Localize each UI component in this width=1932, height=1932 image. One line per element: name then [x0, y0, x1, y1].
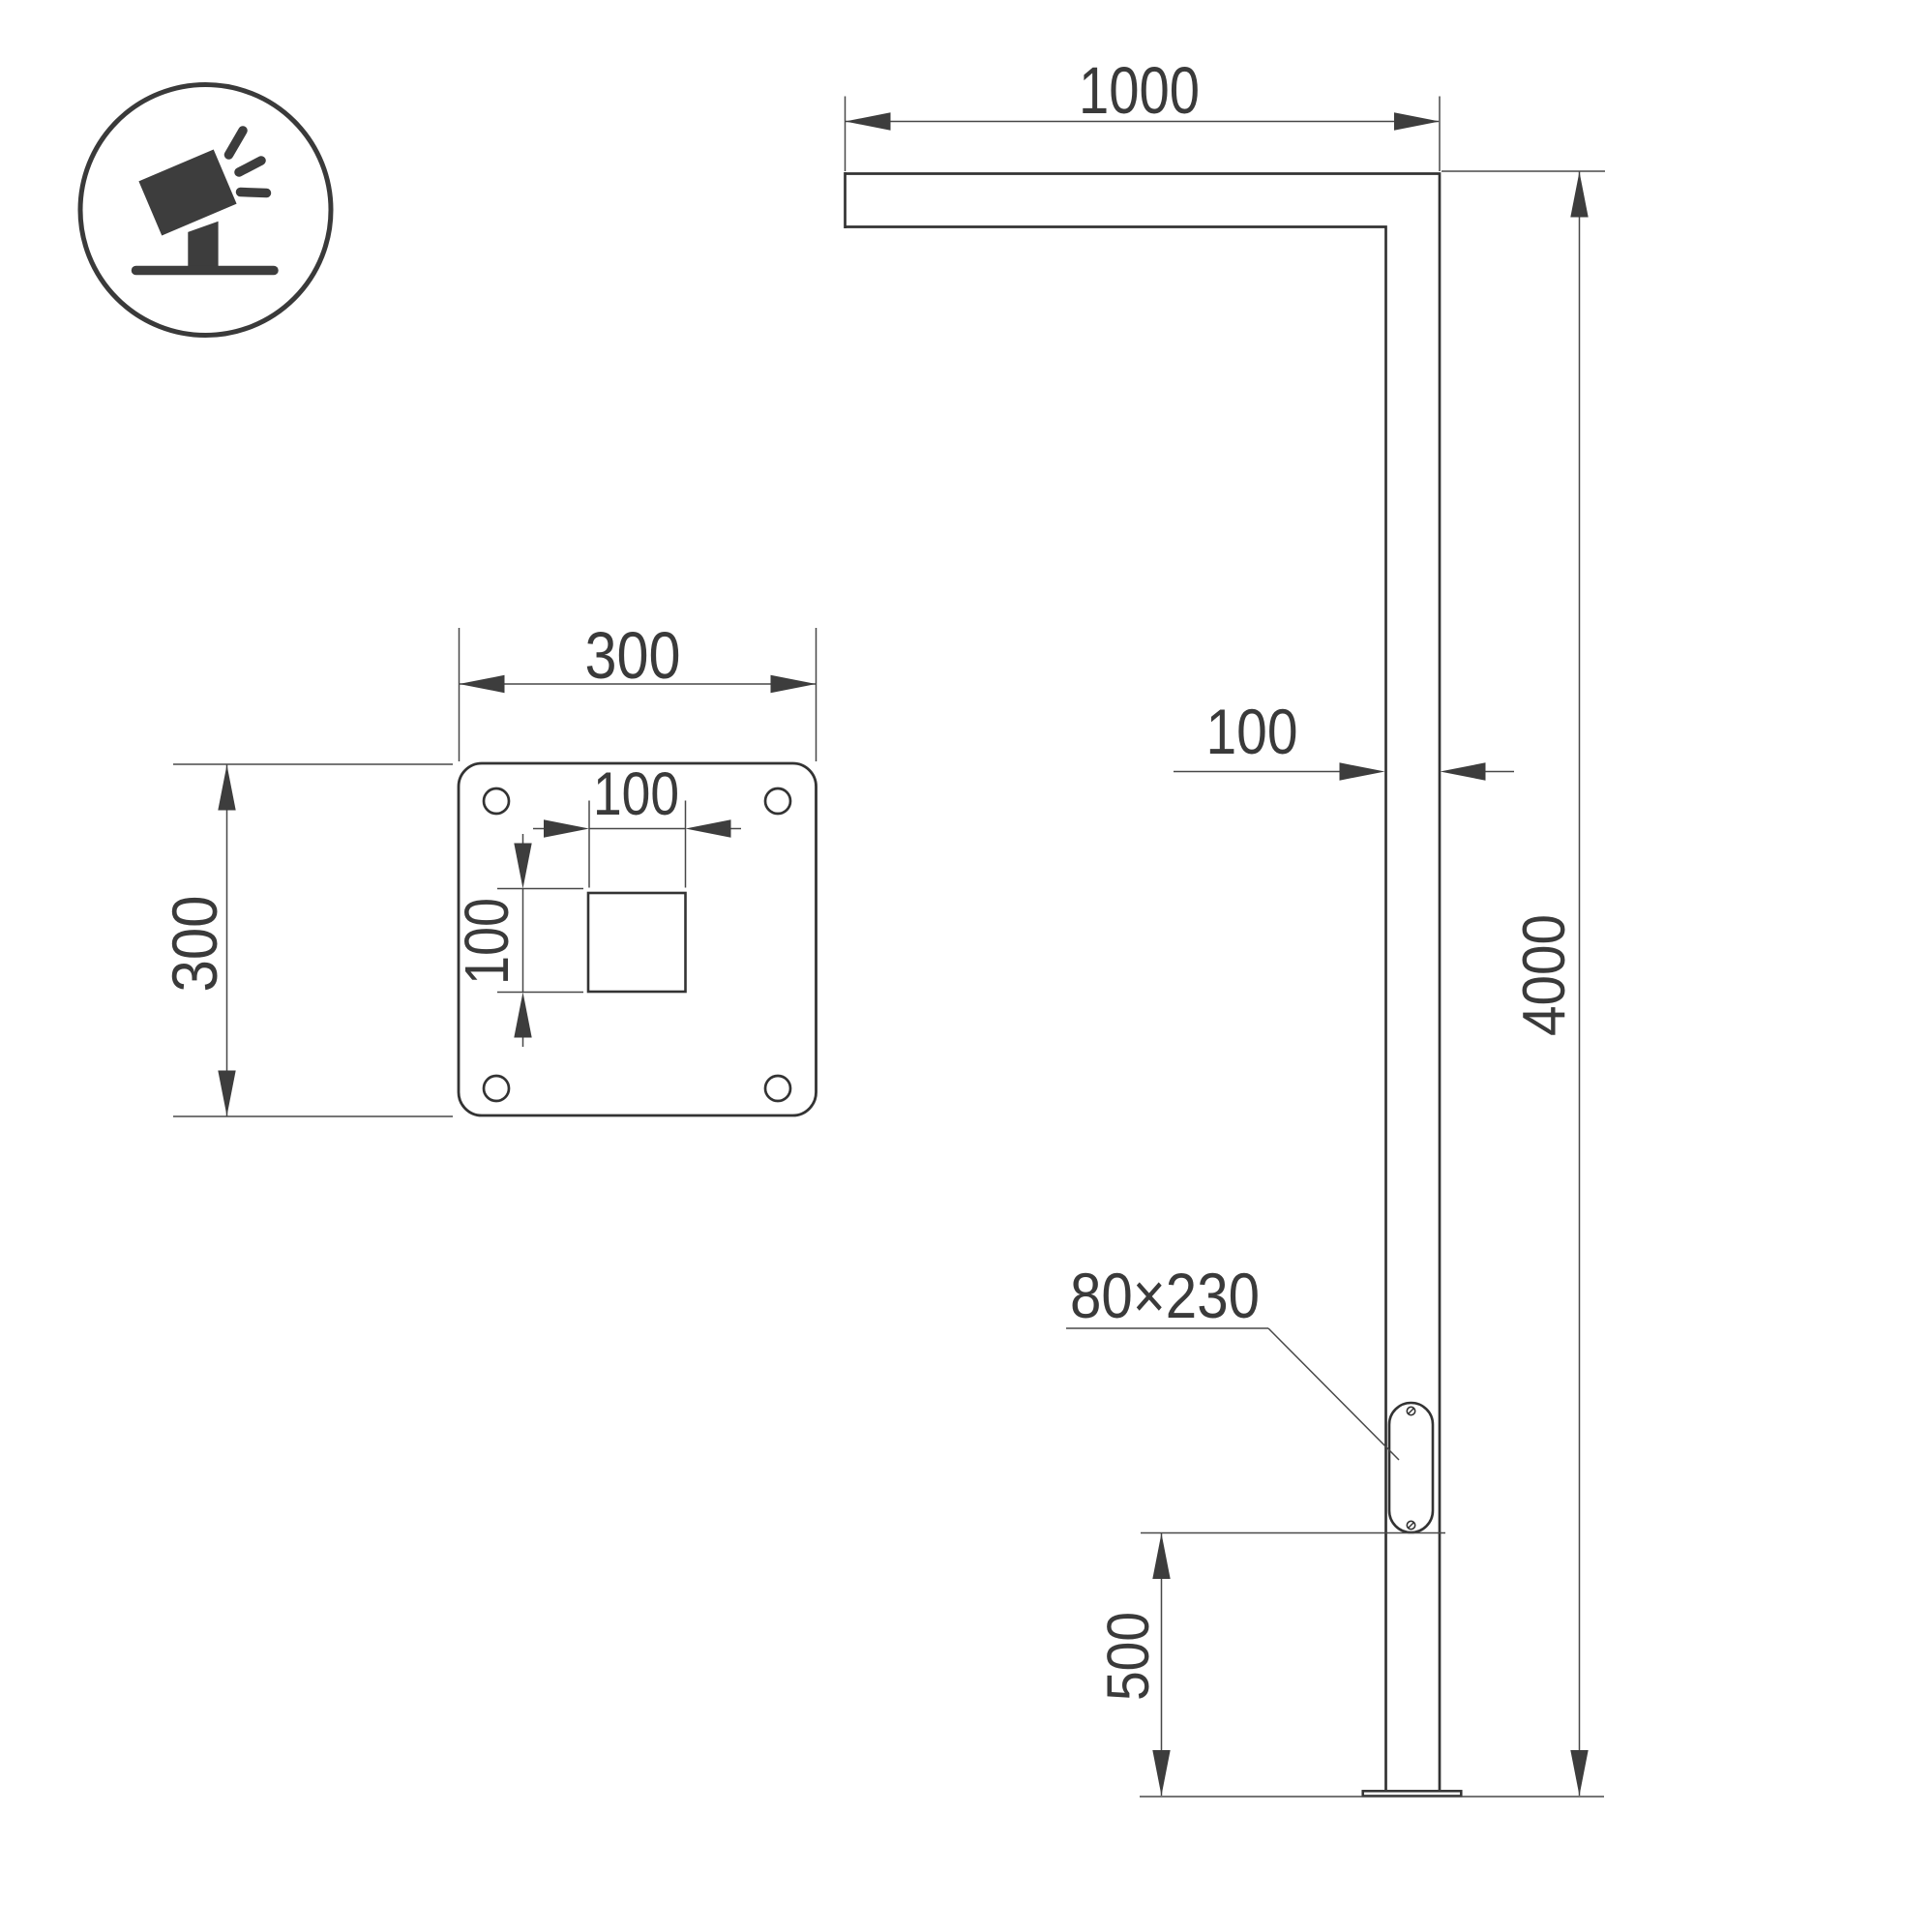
- svg-text:1000: 1000: [1079, 53, 1200, 128]
- svg-text:80×230: 80×230: [1070, 1260, 1260, 1331]
- svg-text:500: 500: [1095, 1612, 1161, 1701]
- svg-text:100: 100: [1206, 696, 1298, 767]
- svg-text:100: 100: [452, 898, 521, 985]
- svg-text:300: 300: [585, 618, 681, 693]
- svg-text:100: 100: [593, 760, 679, 828]
- svg-text:4000: 4000: [1511, 914, 1578, 1036]
- svg-text:300: 300: [159, 896, 230, 993]
